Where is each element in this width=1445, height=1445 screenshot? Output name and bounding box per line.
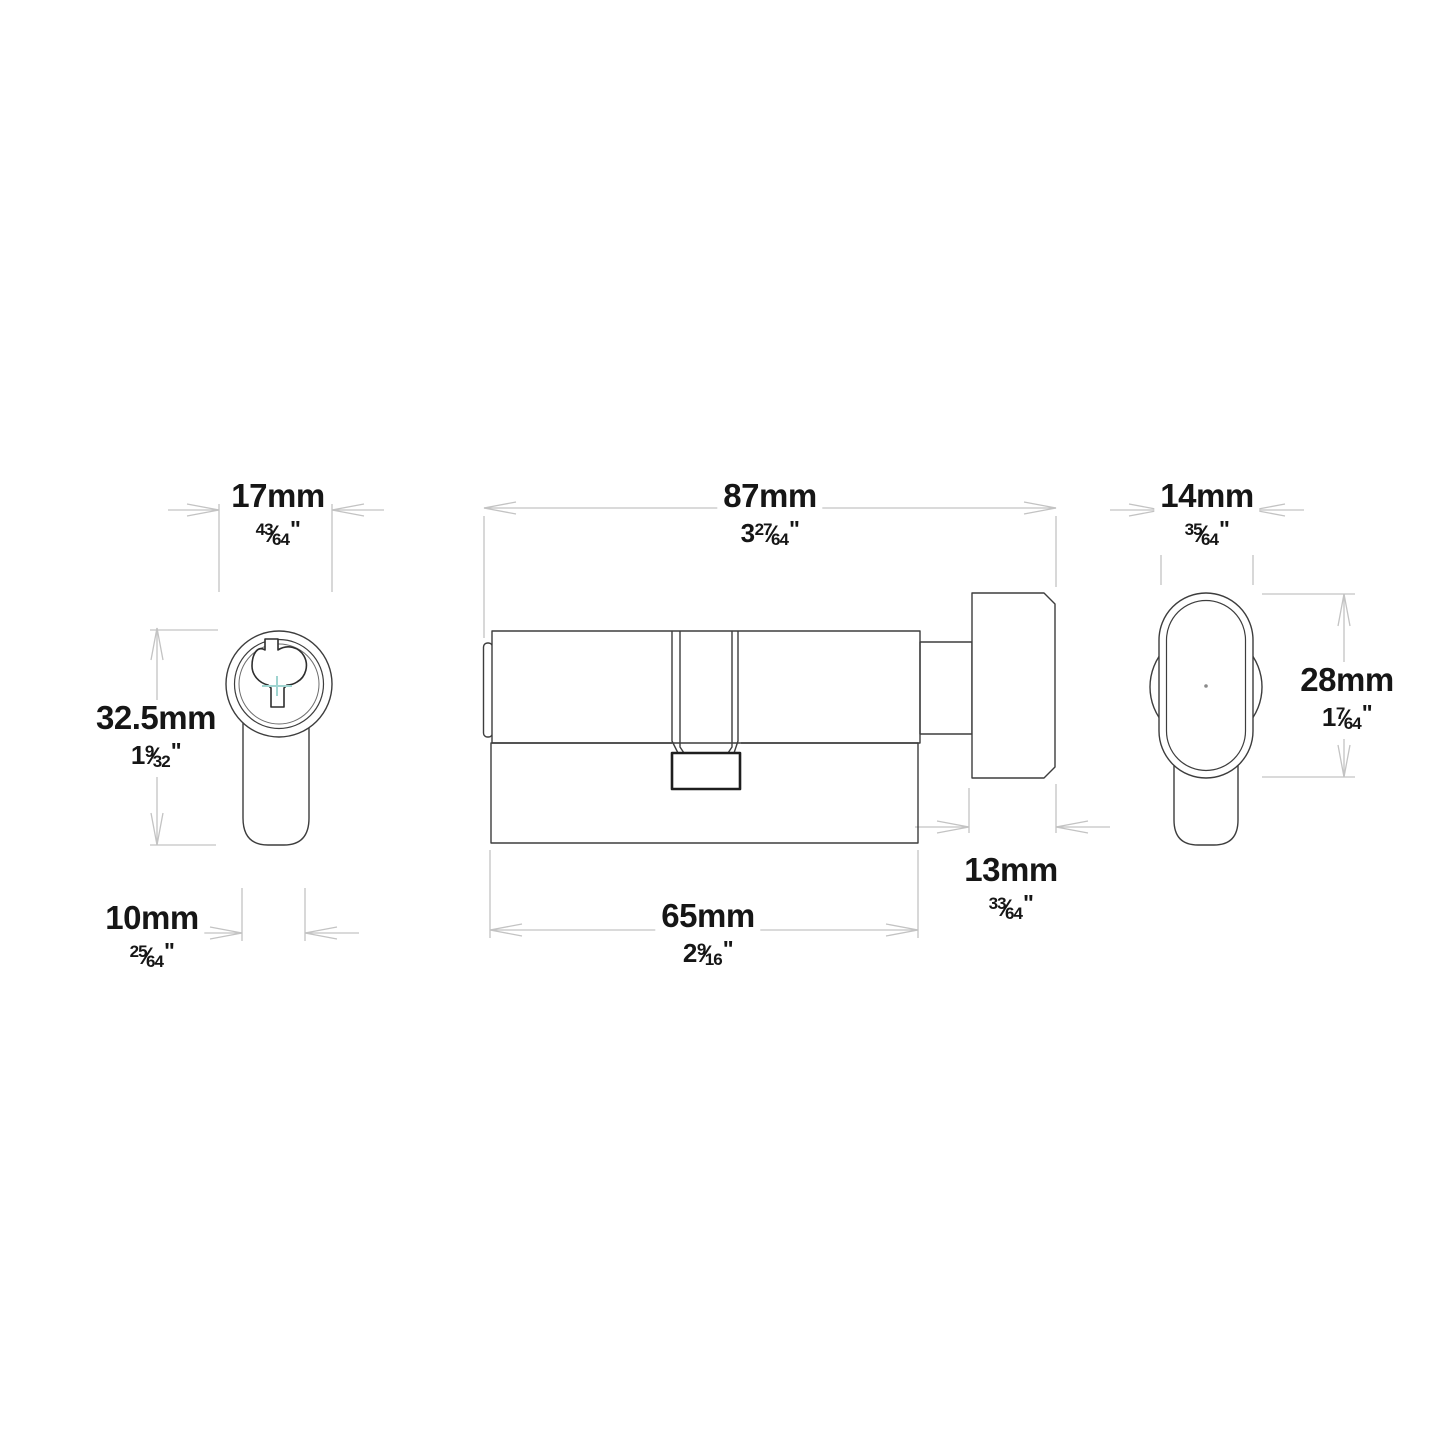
dim-14mm-inches: 35⁄64": [1160, 514, 1253, 555]
center-mark: [1204, 684, 1208, 688]
dim-13mm-lines: [915, 784, 1110, 833]
dim-87mm-label: 87mm 327⁄64": [717, 478, 822, 555]
dim-32-5mm-inches: 19⁄32": [96, 736, 216, 777]
cam: [672, 753, 740, 789]
knob-neck: [920, 642, 972, 734]
front-face-edge: [484, 643, 493, 737]
front-view: [226, 631, 332, 845]
dim-17mm-value: 17mm: [231, 478, 324, 514]
dim-10mm-inches: 25⁄64": [105, 936, 198, 977]
dim-65mm-value: 65mm: [661, 898, 754, 934]
dim-32-5mm-value: 32.5mm: [96, 700, 216, 736]
dim-65mm-label: 65mm 29⁄16": [655, 898, 760, 975]
dim-14mm-label: 14mm 35⁄64": [1154, 478, 1259, 555]
dim-10mm-lines: [188, 888, 359, 941]
dim-28mm-value: 28mm: [1300, 662, 1393, 698]
dim-10mm-value: 10mm: [105, 900, 198, 936]
dim-13mm-value: 13mm: [964, 852, 1057, 888]
end-view: [1150, 593, 1262, 845]
dim-14mm-value: 14mm: [1160, 478, 1253, 514]
dim-28mm-label: 28mm 17⁄64": [1294, 662, 1399, 739]
barrel: [492, 631, 920, 743]
dim-10mm-label: 10mm 25⁄64": [99, 900, 204, 977]
dim-32-5mm-label: 32.5mm 19⁄32": [90, 700, 222, 777]
dim-65mm-inches: 29⁄16": [661, 934, 754, 975]
dim-87mm-inches: 327⁄64": [723, 514, 816, 555]
dim-28mm-inches: 17⁄64": [1300, 698, 1393, 739]
dim-17mm-inches: 43⁄64": [231, 514, 324, 555]
dim-87mm-value: 87mm: [723, 478, 816, 514]
dim-13mm-inches: 33⁄64": [964, 888, 1057, 929]
thumbturn-knob-side: [972, 593, 1055, 778]
lock-cylinder-technical-drawing: 17mm 43⁄64" 87mm 327⁄64" 14mm 35⁄64" 32.…: [0, 0, 1445, 1445]
dim-17mm-label: 17mm 43⁄64": [225, 478, 330, 555]
dim-13mm-label: 13mm 33⁄64": [958, 852, 1063, 929]
